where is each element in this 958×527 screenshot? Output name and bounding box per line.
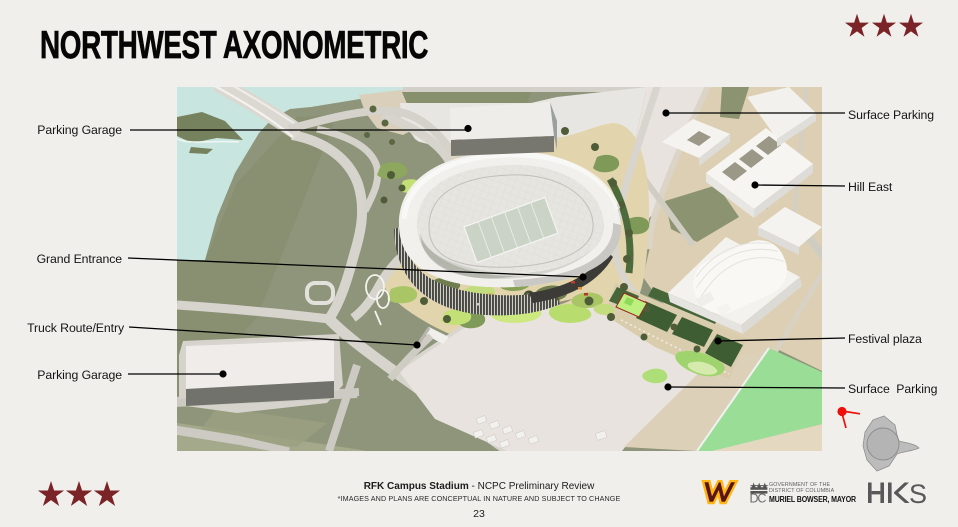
svg-text:S: S (909, 482, 926, 504)
svg-text:DC: DC (750, 492, 766, 506)
